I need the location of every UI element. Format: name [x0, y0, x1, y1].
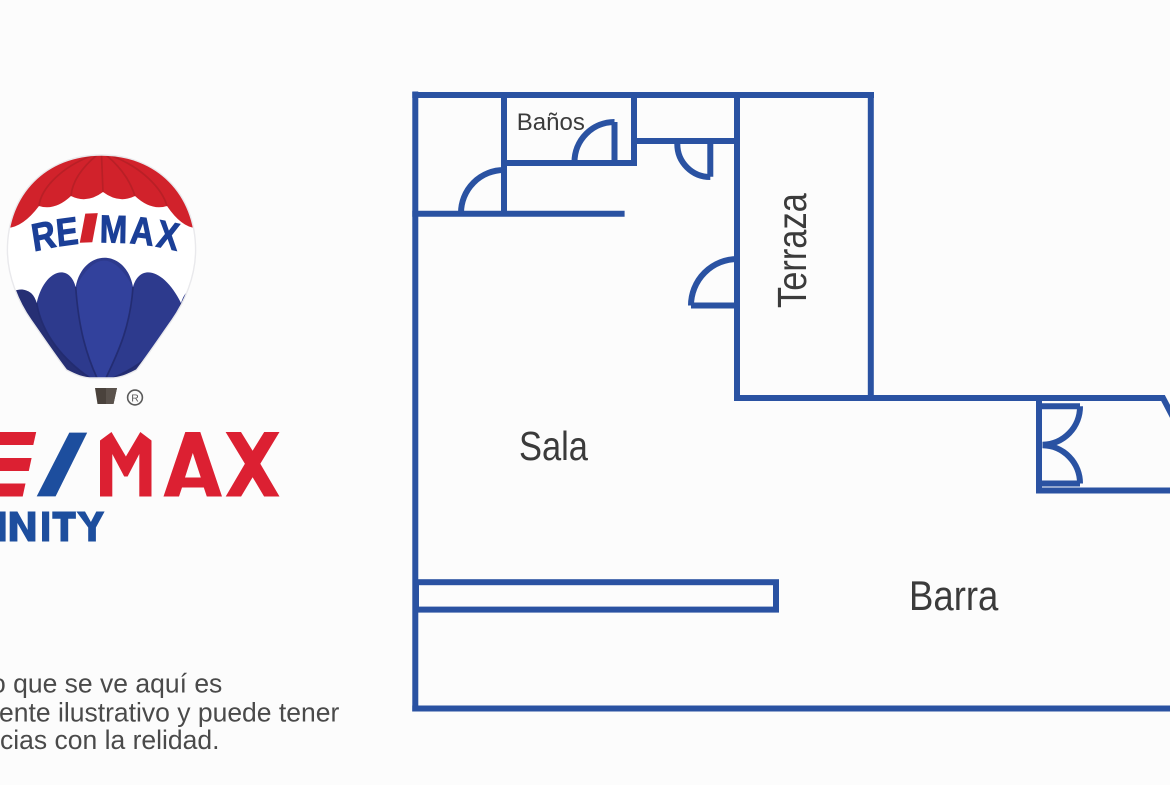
svg-text:cias con la relidad.: cias con la relidad.	[0, 725, 219, 755]
svg-text:Baños: Baños	[517, 109, 585, 136]
svg-text:Terraza: Terraza	[770, 192, 815, 308]
svg-text:Sala: Sala	[519, 424, 589, 469]
svg-text:Barra: Barra	[909, 573, 998, 620]
svg-text:o que se ve aquí es: o que se ve aquí es	[0, 668, 222, 698]
svg-text:ente ilustrativo y puede tener: ente ilustrativo y puede tener	[0, 698, 339, 728]
svg-text:R: R	[131, 393, 139, 405]
